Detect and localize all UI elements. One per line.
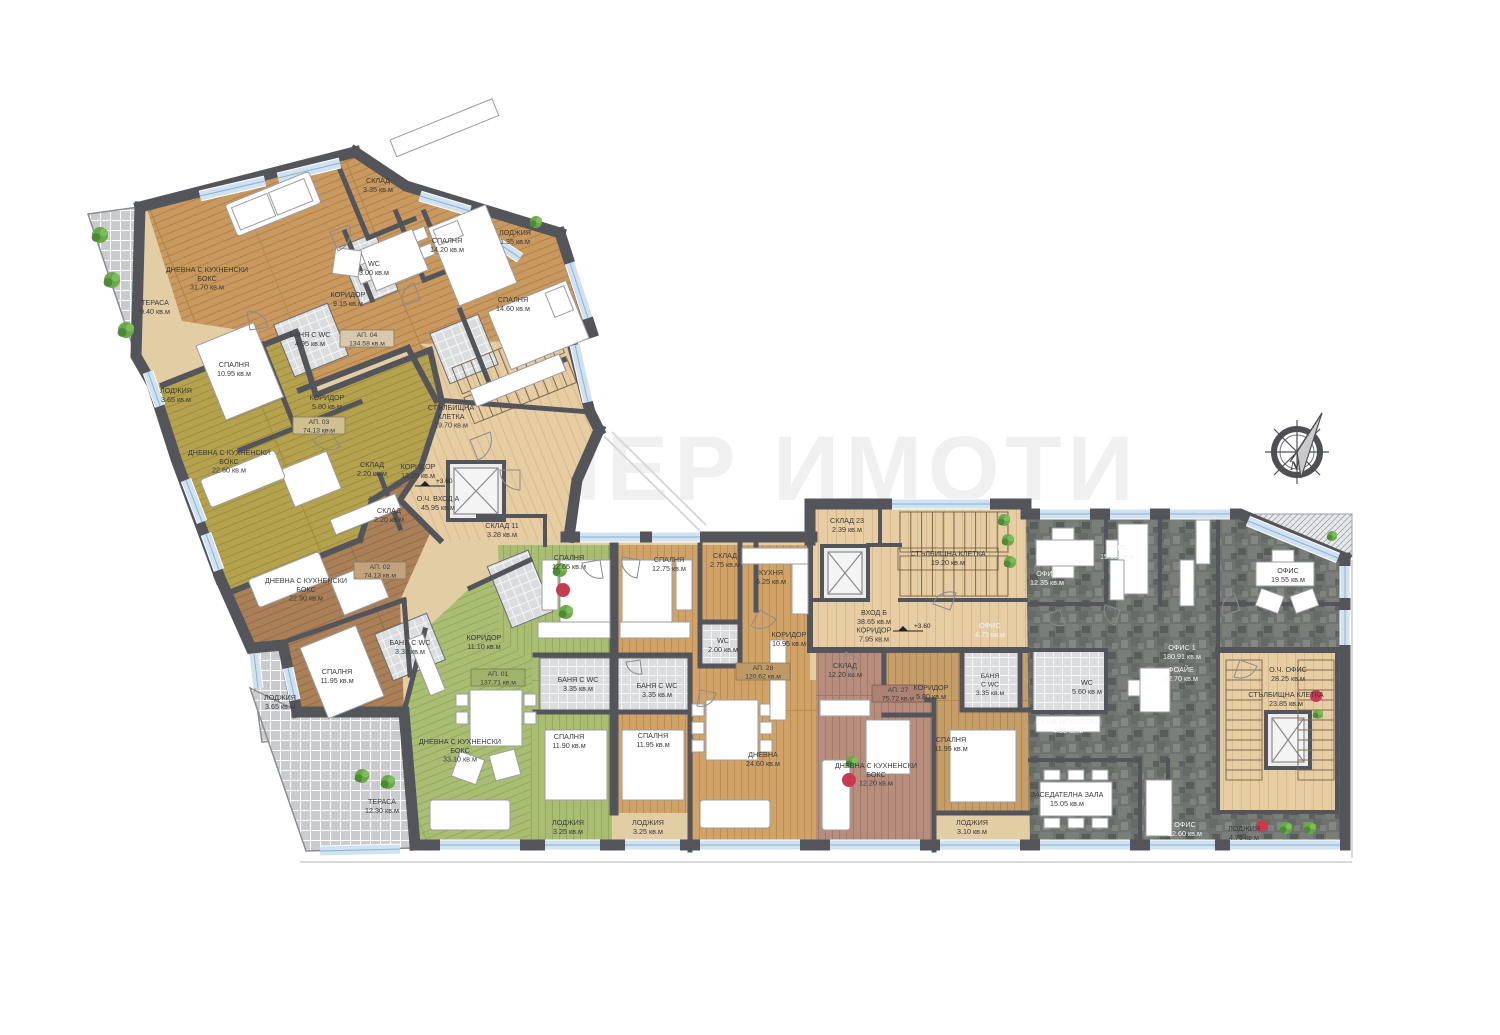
svg-text:БАНЯ С WC3.35 кв.м: БАНЯ С WC3.35 кв.м [558,675,599,693]
svg-text:ОФИС 1180.91 кв.м: ОФИС 1180.91 кв.м [1163,643,1201,661]
svg-text:ЛОДЖИЯ3.25 кв.м: ЛОДЖИЯ3.25 кв.м [632,818,664,836]
svg-text:КОРИДОР5.80 кв.м: КОРИДОР5.80 кв.м [310,393,345,411]
svg-text:СКЛАД2.20 кв.м: СКЛАД2.20 кв.м [357,460,387,478]
svg-text:СПАЛНЯ14.60 кв.м: СПАЛНЯ14.60 кв.м [496,295,530,313]
svg-text:КОРИДОР9.15 кв.м: КОРИДОР9.15 кв.м [331,290,366,308]
svg-text:+3.60: +3.60 [436,478,453,485]
svg-text:ЛОДЖИЯ1.35 кв.м: ЛОДЖИЯ1.35 кв.м [499,228,531,246]
svg-text:БАНЯ С WC3.35 кв.м: БАНЯ С WC3.35 кв.м [637,681,678,699]
svg-text:ЛОДЖИЯ4.75 кв.м: ЛОДЖИЯ4.75 кв.м [1228,824,1260,842]
svg-text:ТЕРАСА9.40 кв.м: ТЕРАСА9.40 кв.м [140,298,170,316]
svg-text:+3.60: +3.60 [914,623,931,630]
svg-text:ЛОДЖИЯ3.10 кв.м: ЛОДЖИЯ3.10 кв.м [956,818,988,836]
svg-text:СПАЛНЯ11.95 кв.м: СПАЛНЯ11.95 кв.м [934,735,967,753]
svg-text:СПАЛНЯ12.75 кв.м: СПАЛНЯ12.75 кв.м [652,555,686,573]
svg-text:КУХНЯ6.25 кв.м: КУХНЯ6.25 кв.м [756,568,786,586]
svg-text:КОРИДОР10.95 кв.м: КОРИДОР10.95 кв.м [772,630,807,648]
svg-text:ЛОДЖИЯ3.25 кв.м: ЛОДЖИЯ3.25 кв.м [552,818,584,836]
svg-text:ЛОДЖИЯ3.65 кв.м: ЛОДЖИЯ3.65 кв.м [264,693,296,711]
svg-text:СПАЛНЯ11.95 кв.м: СПАЛНЯ11.95 кв.м [636,731,669,749]
svg-text:КОРИДОР5.80 кв.м: КОРИДОР5.80 кв.м [914,683,949,701]
svg-text:N: N [1289,458,1300,473]
svg-text:КОРИДОР13.25 кв.м: КОРИДОР13.25 кв.м [401,462,436,480]
svg-text:СПАЛНЯ11.90 кв.м: СПАЛНЯ11.90 кв.м [552,732,585,750]
svg-text:СКЛАД 232.39 кв.м: СКЛАД 232.39 кв.м [830,516,864,534]
svg-text:СКЛАД 113.28 кв.м: СКЛАД 113.28 кв.м [485,521,518,539]
svg-text:ФОАЙЕ22.70 кв.м: ФОАЙЕ22.70 кв.м [1164,665,1198,683]
svg-text:ТЕРАСА12.30 кв.м: ТЕРАСА12.30 кв.м [365,797,399,815]
svg-text:О.Ч. ВХОД А45.95 кв.м: О.Ч. ВХОД А45.95 кв.м [417,494,460,512]
svg-text:СКЛАД2.75 кв.м: СКЛАД2.75 кв.м [710,551,740,569]
svg-text:О.Ч. ОФИС28.25 кв.м: О.Ч. ОФИС28.25 кв.м [1269,665,1307,683]
svg-text:СКЛАД12.20 кв.м: СКЛАД12.20 кв.м [828,661,862,679]
svg-text:ЛОДЖИЯ3.65 кв.м: ЛОДЖИЯ3.65 кв.м [160,386,192,404]
svg-text:КОРИДОР11.10 кв.м: КОРИДОР11.10 кв.м [467,633,502,651]
svg-text:СПАЛНЯ14.20 кв.м: СПАЛНЯ14.20 кв.м [430,236,464,254]
svg-text:ОФИС4.75 кв.м: ОФИС4.75 кв.м [975,621,1005,639]
svg-text:СПАЛНЯ12.65 кв.м: СПАЛНЯ12.65 кв.м [552,553,586,571]
svg-text:ВХОД Б38.65 кв.мКОРИДОР7.95 кв: ВХОД Б38.65 кв.мКОРИДОР7.95 кв.м [857,608,892,643]
svg-text:БАНЯ С WC4.95 кв.м: БАНЯ С WC4.95 кв.м [290,330,331,348]
svg-text:ДНЕВНА24.60 кв.м: ДНЕВНА24.60 кв.м [746,750,780,768]
svg-text:БАНЯ С WC3.35 кв.м: БАНЯ С WC3.35 кв.м [390,638,431,656]
svg-text:СКЛАД2.20 кв.м: СКЛАД2.20 кв.м [374,506,404,524]
svg-text:СПАЛНЯ10.95 кв.м: СПАЛНЯ10.95 кв.м [217,360,251,378]
svg-text:СКЛАД3.35 кв.м: СКЛАД3.35 кв.м [363,176,393,194]
svg-text:СПАЛНЯ11.95 кв.м: СПАЛНЯ11.95 кв.м [320,667,353,685]
